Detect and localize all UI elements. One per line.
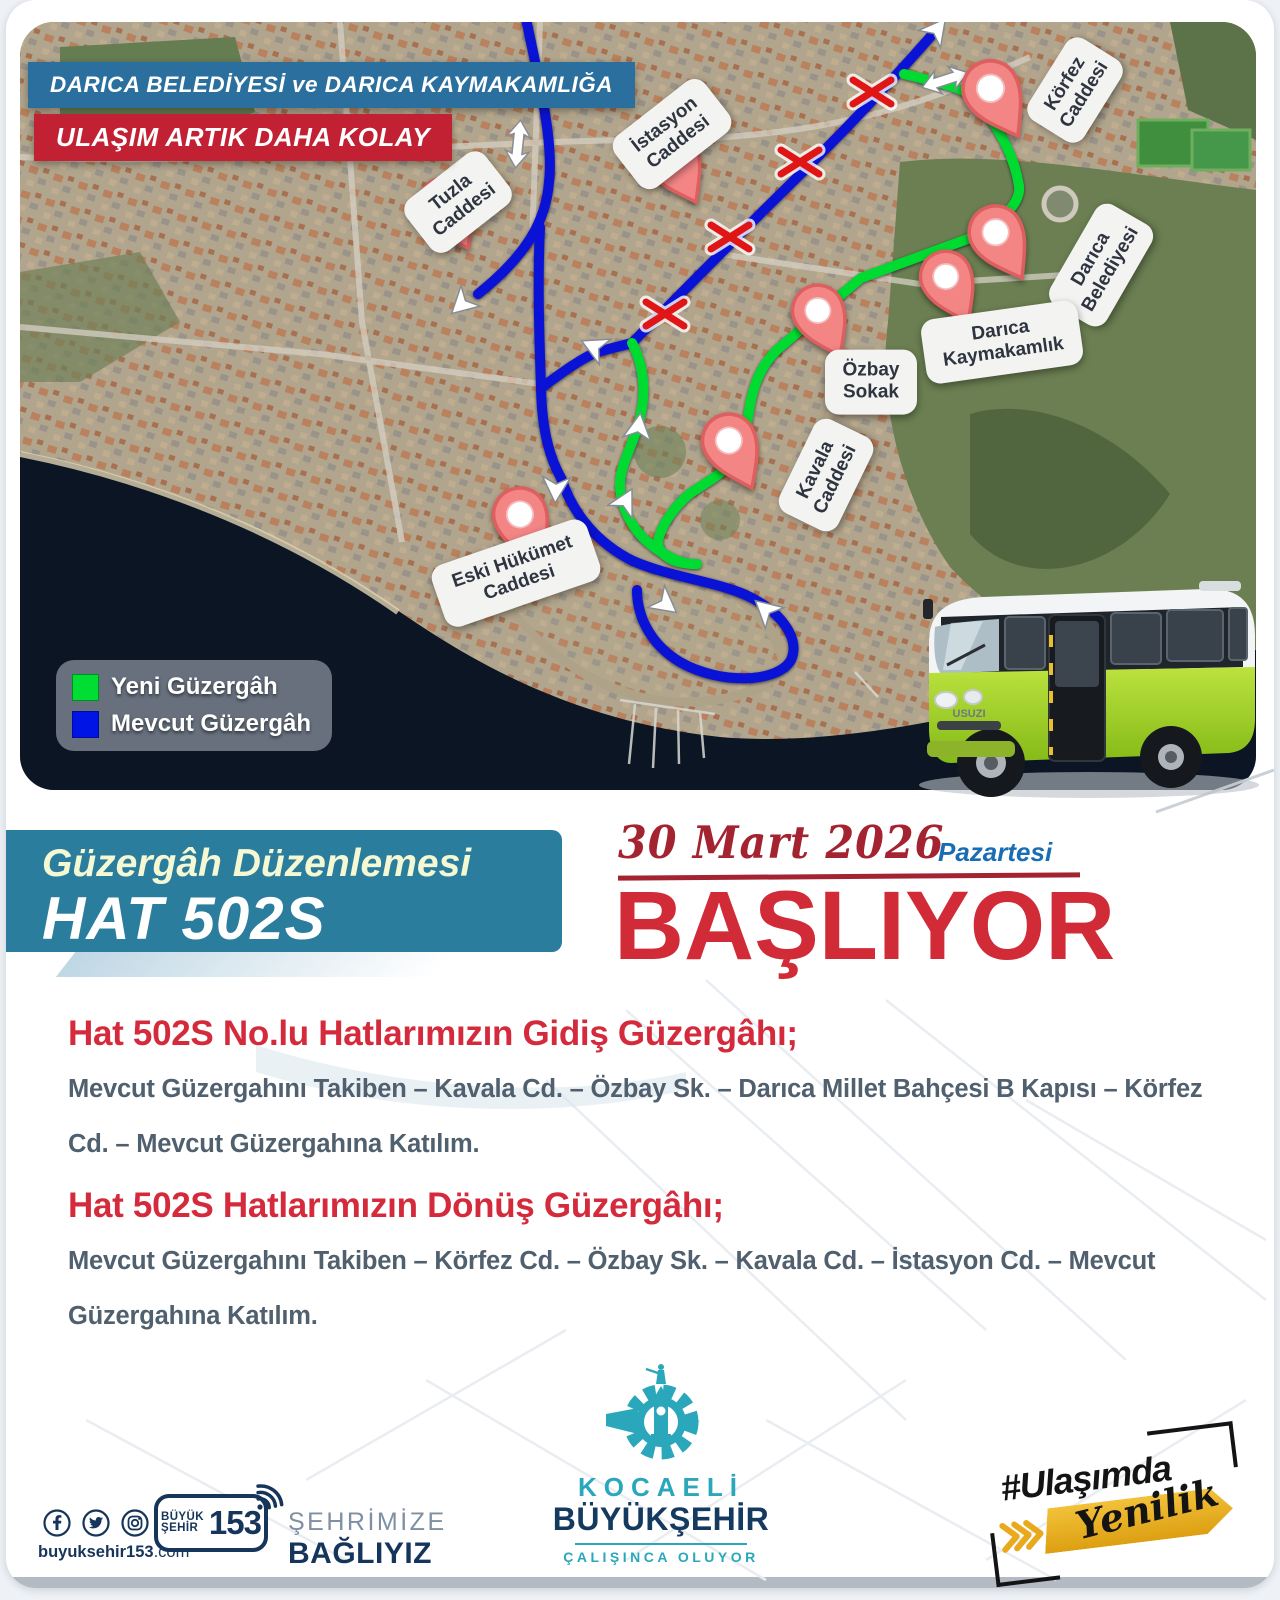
poster-card: DARICA BELEDİYESİ ve DARICA KAYMAKAMLIĞA… [6, 0, 1274, 1588]
pin-label-ozbay: Özbay Sokak [825, 350, 917, 415]
twitter-icon [81, 1508, 111, 1538]
call-center-words: BÜYÜK ŞEHİR [161, 1512, 204, 1535]
poster-page: { "banners": { "municipality": "DARICA B… [0, 0, 1280, 1600]
route-legend: Yeni Güzergâh Mevcut Güzergâh [56, 660, 332, 751]
instagram-icon [120, 1508, 150, 1538]
route-change-band: Güzergâh Düzenlemesi HAT 502S [6, 830, 562, 952]
municipality-banner-text: DARICA BELEDİYESİ ve DARICA KAYMAKAMLIĞA [50, 72, 613, 98]
slogan-banner: ULAŞIM ARTIK DAHA KOLAY [34, 114, 452, 161]
slogan-banner-text: ULAŞIM ARTIK DAHA KOLAY [56, 122, 430, 153]
social-icons [42, 1508, 150, 1538]
brand-city: KOCAELİ [551, 1472, 771, 1503]
wifi-signal-icon [250, 1478, 290, 1518]
bus-image: USUZI [899, 543, 1271, 805]
new-route-label: Yeni Güzergâh [111, 673, 278, 701]
outbound-heading: Hat 502S No.lu Hatlarımızın Gidiş Güzerg… [68, 1014, 798, 1054]
return-body: Mevcut Güzergahını Takiben – Körfez Cd. … [68, 1234, 1226, 1344]
brand-motto: ÇALIŞINCA OLUYOR [551, 1549, 771, 1565]
outbound-body: Mevcut Güzergahını Takiben – Kavala Cd. … [68, 1062, 1226, 1172]
municipality-banner: DARICA BELEDİYESİ ve DARICA KAYMAKAMLIĞA [28, 62, 635, 108]
band-title: Güzergâh Düzenlemesi [42, 842, 562, 886]
existing-route-swatch [72, 711, 99, 738]
slogan-line2: BAĞLIYIZ [288, 1537, 447, 1570]
launch-day: Pazartesi [938, 837, 1052, 868]
new-route-swatch [72, 674, 99, 701]
brand-divider [575, 1543, 747, 1545]
band-line-number: HAT 502S [42, 884, 562, 953]
kocaeli-metropolitan-logo: KOCAELİ BÜYÜKŞEHİR ÇALIŞINCA OLUYOR [551, 1358, 771, 1565]
legend-item-existing: Mevcut Güzergâh [72, 710, 316, 738]
call-center-word2: ŞEHİR [161, 1523, 204, 1535]
launch-date: 30 Mart 2026 [618, 816, 944, 869]
return-heading: Hat 502S Hatlarımızın Dönüş Güzergâhı; [68, 1186, 724, 1226]
slogan-block: ŞEHRİMİZE BAĞLIYIZ [288, 1509, 447, 1570]
brand-org: BÜYÜKŞEHİR [551, 1501, 771, 1538]
facebook-icon [42, 1508, 72, 1538]
website-name: buyuksehir153 [38, 1543, 154, 1561]
chevrons-icon [996, 1513, 1047, 1558]
legend-item-new: Yeni Güzergâh [72, 673, 316, 701]
existing-route-label: Mevcut Güzergâh [111, 710, 311, 738]
kocaeli-gear-tower-icon [586, 1358, 736, 1470]
launch-action: BAŞLIYOR [614, 870, 1115, 982]
bus-brand-text: USUZI [953, 708, 986, 720]
slogan-line1: ŞEHRİMİZE [288, 1509, 447, 1537]
band-shadow [56, 951, 546, 977]
